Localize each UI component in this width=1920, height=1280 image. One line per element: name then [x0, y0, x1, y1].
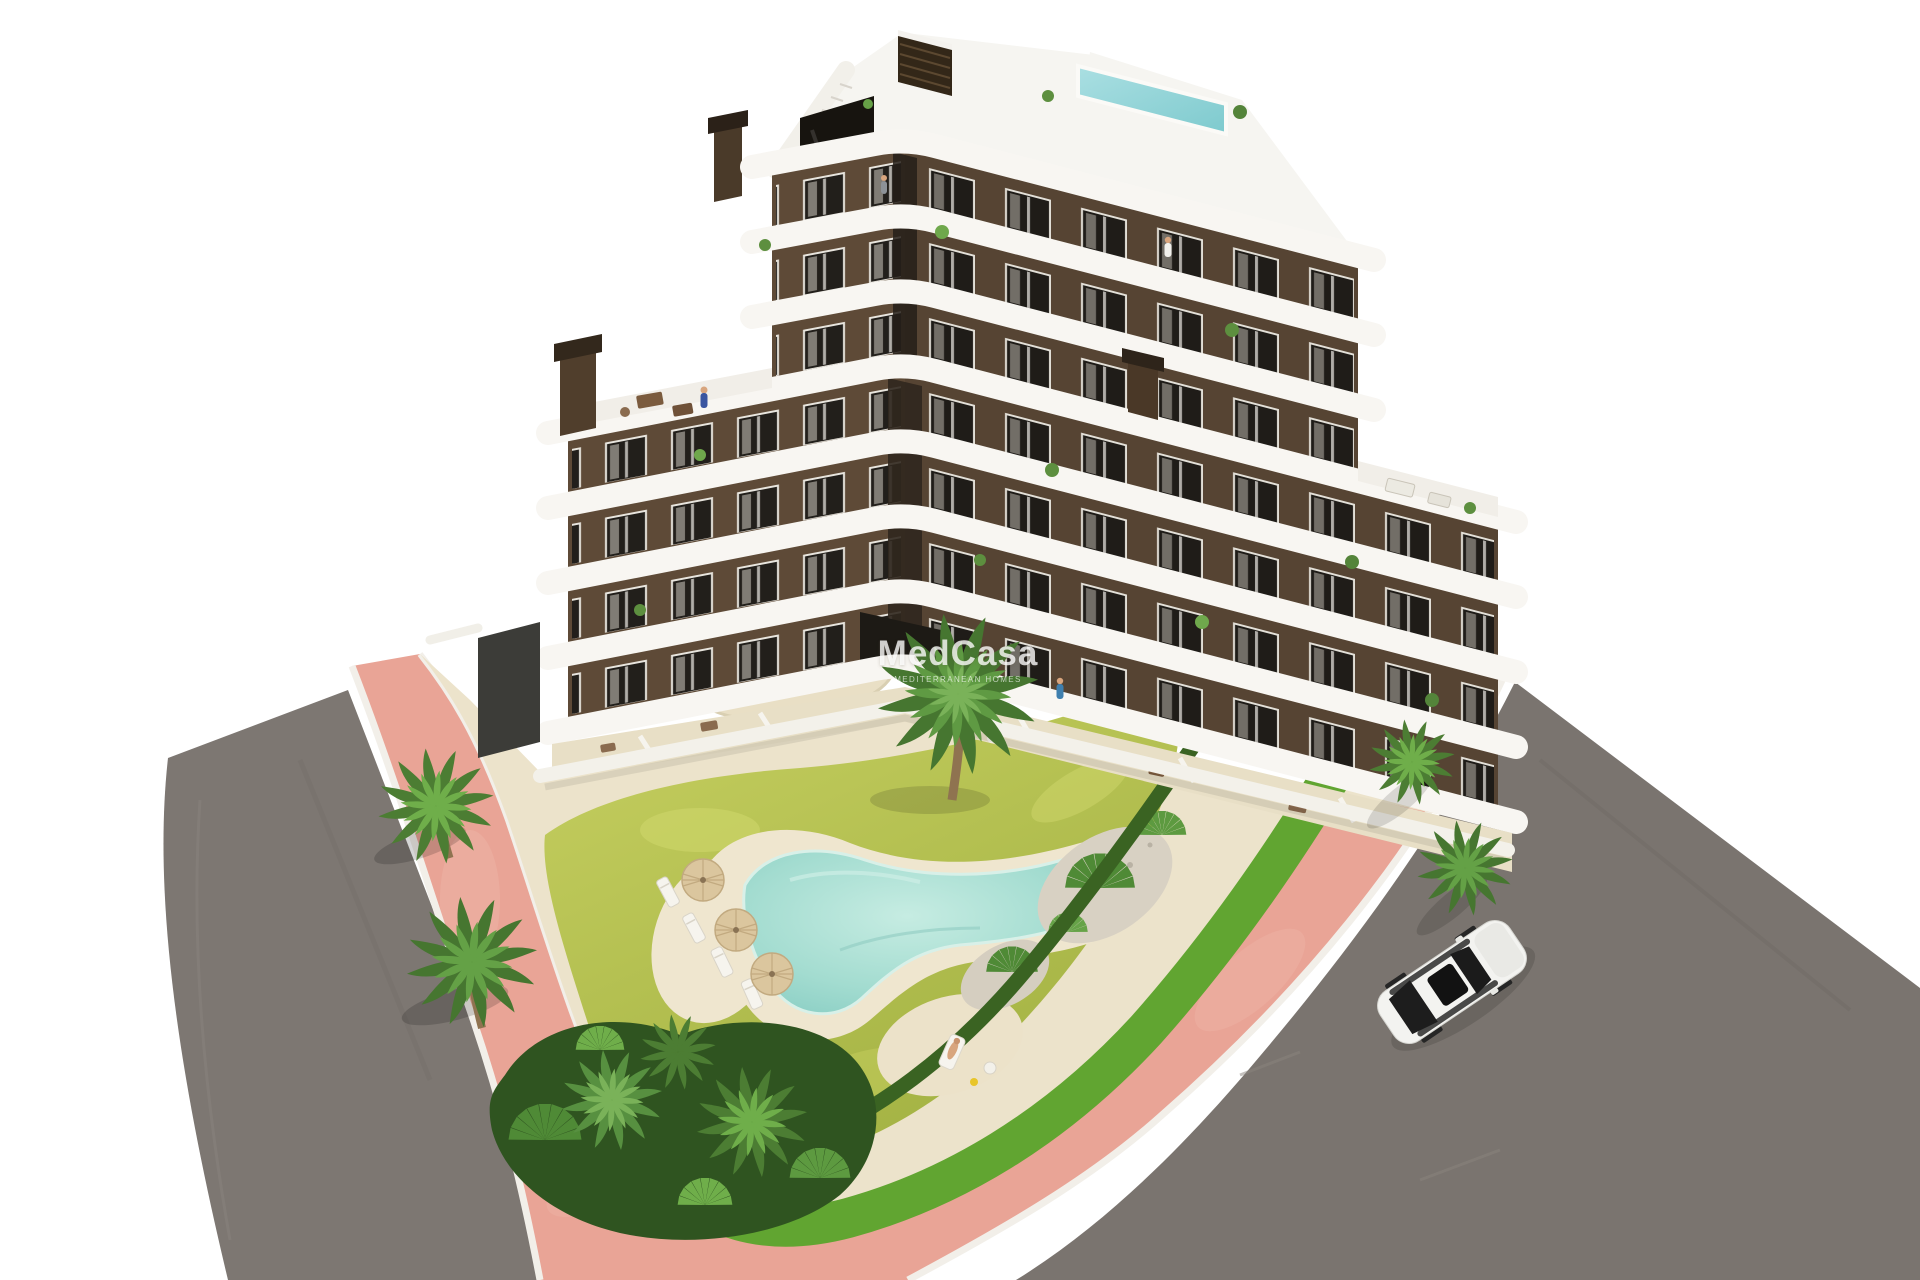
scene-svg: [0, 0, 1920, 1280]
terrace-plant: [1464, 502, 1476, 514]
roof-plant: [863, 99, 873, 109]
render-canvas: MedCasa MEDITERRANEAN HOMES: [0, 0, 1920, 1280]
person: [1165, 237, 1172, 257]
roof-plant: [1042, 90, 1054, 102]
side-table: [984, 1062, 996, 1074]
palm-shadow: [870, 786, 990, 814]
yellow-towel: [970, 1078, 978, 1086]
person: [1057, 678, 1064, 699]
corner-recess-upper: [893, 152, 917, 364]
terrace-table: [620, 407, 630, 417]
person: [881, 175, 887, 194]
parasol: [682, 859, 724, 901]
chimney: [1122, 348, 1164, 420]
parasol: [751, 953, 793, 995]
chimney: [708, 110, 748, 202]
chimney: [554, 334, 602, 436]
person: [701, 387, 708, 409]
parasol: [715, 909, 757, 951]
roof-plant: [1233, 105, 1247, 119]
